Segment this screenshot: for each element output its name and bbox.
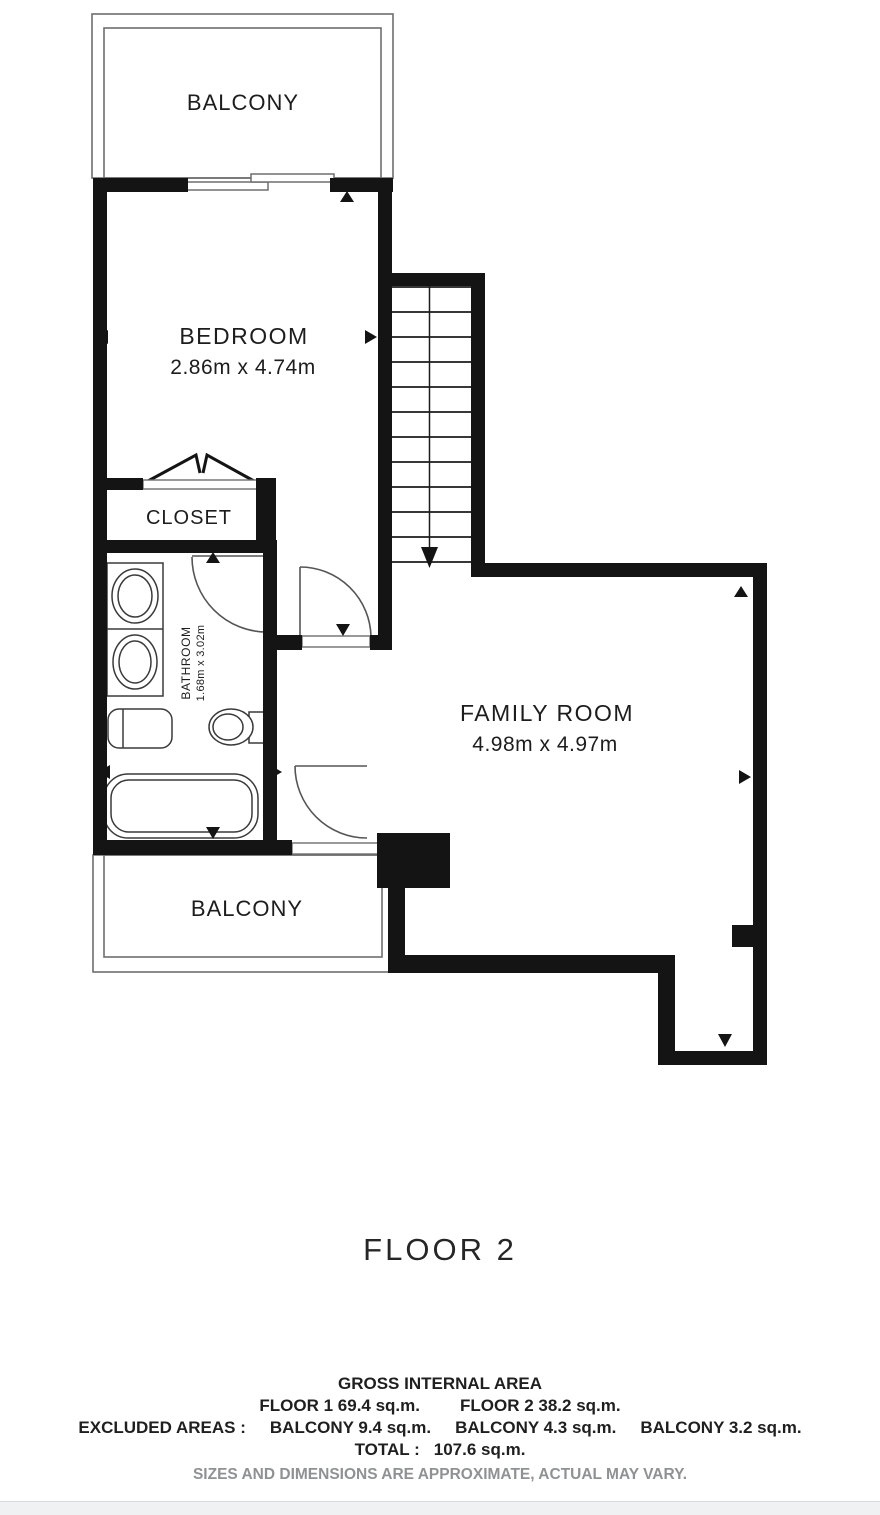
dimension-arrow-icon bbox=[336, 624, 350, 636]
balcony-bottom-label: BALCONY bbox=[191, 896, 303, 921]
wall-hall-south-a bbox=[263, 635, 302, 650]
gross-internal-area-heading: GROSS INTERNAL AREA bbox=[0, 1374, 880, 1396]
stair-direction-arrow-icon bbox=[421, 547, 438, 568]
floor1-area: FLOOR 1 69.4 sq.m. bbox=[259, 1396, 420, 1416]
summary-heading: GROSS INTERNAL AREA bbox=[338, 1374, 542, 1394]
excluded-areas-line: EXCLUDED AREAS : BALCONY 9.4 sq.m. BALCO… bbox=[0, 1418, 880, 1440]
bathroom-dimensions: 1.68m x 3.02m bbox=[195, 625, 207, 702]
bidet bbox=[209, 709, 264, 745]
balcony3-area: BALCONY 3.2 sq.m. bbox=[640, 1418, 801, 1438]
balcony1-area: BALCONY 9.4 sq.m. bbox=[270, 1418, 431, 1438]
wall-north-a bbox=[93, 178, 188, 192]
staircase bbox=[392, 275, 471, 568]
excluded-areas-label: EXCLUDED AREAS : bbox=[78, 1418, 246, 1438]
closet-label: CLOSET bbox=[146, 507, 232, 529]
wall-notch-west bbox=[658, 957, 675, 1065]
vanity-double-sink bbox=[107, 563, 163, 696]
bathroom-label: BATHROOM bbox=[179, 626, 193, 699]
balcony-top-label: BALCONY bbox=[187, 90, 299, 115]
disclaimer-text: SIZES AND DIMENSIONS ARE APPROXIMATE, AC… bbox=[193, 1466, 687, 1484]
wall-west bbox=[93, 178, 107, 855]
floor-plan-page: BALCONY BEDROOM 2.86m x 4.74m CLOSET FAM… bbox=[0, 0, 880, 1515]
total-value: 107.6 sq.m. bbox=[434, 1440, 526, 1460]
floor-title: FLOOR 2 bbox=[0, 1232, 880, 1268]
floor-plan-drawing: BALCONY BEDROOM 2.86m x 4.74m CLOSET FAM… bbox=[0, 0, 880, 1110]
wall-closet-north-a bbox=[93, 478, 143, 490]
bathroom-door bbox=[192, 556, 267, 632]
dimension-arrow-icon bbox=[365, 330, 377, 344]
floor-areas-line: FLOOR 1 69.4 sq.m. FLOOR 2 38.2 sq.m. bbox=[0, 1396, 880, 1418]
wall-pillar bbox=[377, 833, 450, 888]
wall-bathroom-south bbox=[93, 840, 292, 855]
closet-bifold-doors bbox=[148, 455, 254, 481]
wall-stair-north bbox=[378, 273, 485, 286]
wall-southeast bbox=[660, 1051, 767, 1065]
family-room-dimensions: 4.98m x 4.97m bbox=[472, 733, 617, 756]
wall-stub bbox=[732, 925, 753, 947]
wall-family-south bbox=[388, 955, 675, 973]
balcony-door-threshold bbox=[292, 843, 380, 854]
toilet bbox=[108, 709, 172, 748]
bedroom-label: BEDROOM bbox=[179, 323, 308, 349]
disclaimer-note: SIZES AND DIMENSIONS ARE APPROXIMATE, AC… bbox=[0, 1466, 880, 1488]
wall-family-north bbox=[471, 563, 767, 577]
dimension-arrow-icon bbox=[206, 552, 220, 563]
bedroom-dimensions: 2.86m x 4.74m bbox=[170, 356, 315, 379]
balcony-door bbox=[295, 766, 367, 838]
floor2-area: FLOOR 2 38.2 sq.m. bbox=[460, 1396, 621, 1416]
bathtub bbox=[104, 774, 258, 838]
dimension-arrow-icon bbox=[340, 191, 354, 202]
wall-bathroom-north bbox=[93, 540, 276, 553]
wall-stair-east bbox=[471, 273, 485, 577]
dimension-arrow-icon bbox=[718, 1034, 732, 1047]
wall-bedroom-east bbox=[378, 178, 392, 650]
balcony2-area: BALCONY 4.3 sq.m. bbox=[455, 1418, 616, 1438]
total-area-line: TOTAL : 107.6 sq.m. bbox=[0, 1440, 880, 1462]
closet-opening-track bbox=[143, 480, 258, 489]
dimension-arrow-icon bbox=[739, 770, 751, 784]
wall-bathroom-east bbox=[263, 540, 277, 855]
dimension-arrow-icon bbox=[734, 586, 748, 597]
sliding-door bbox=[186, 174, 334, 190]
wall-family-east bbox=[753, 563, 767, 1065]
footer-bar bbox=[0, 1501, 880, 1515]
hall-door-threshold bbox=[302, 636, 370, 647]
wall-hall-south-b bbox=[370, 635, 392, 650]
family-room-label: FAMILY ROOM bbox=[460, 700, 634, 726]
total-label: TOTAL : bbox=[355, 1440, 420, 1460]
area-summary: GROSS INTERNAL AREA FLOOR 1 69.4 sq.m. F… bbox=[0, 1374, 880, 1488]
hall-door bbox=[300, 567, 371, 637]
